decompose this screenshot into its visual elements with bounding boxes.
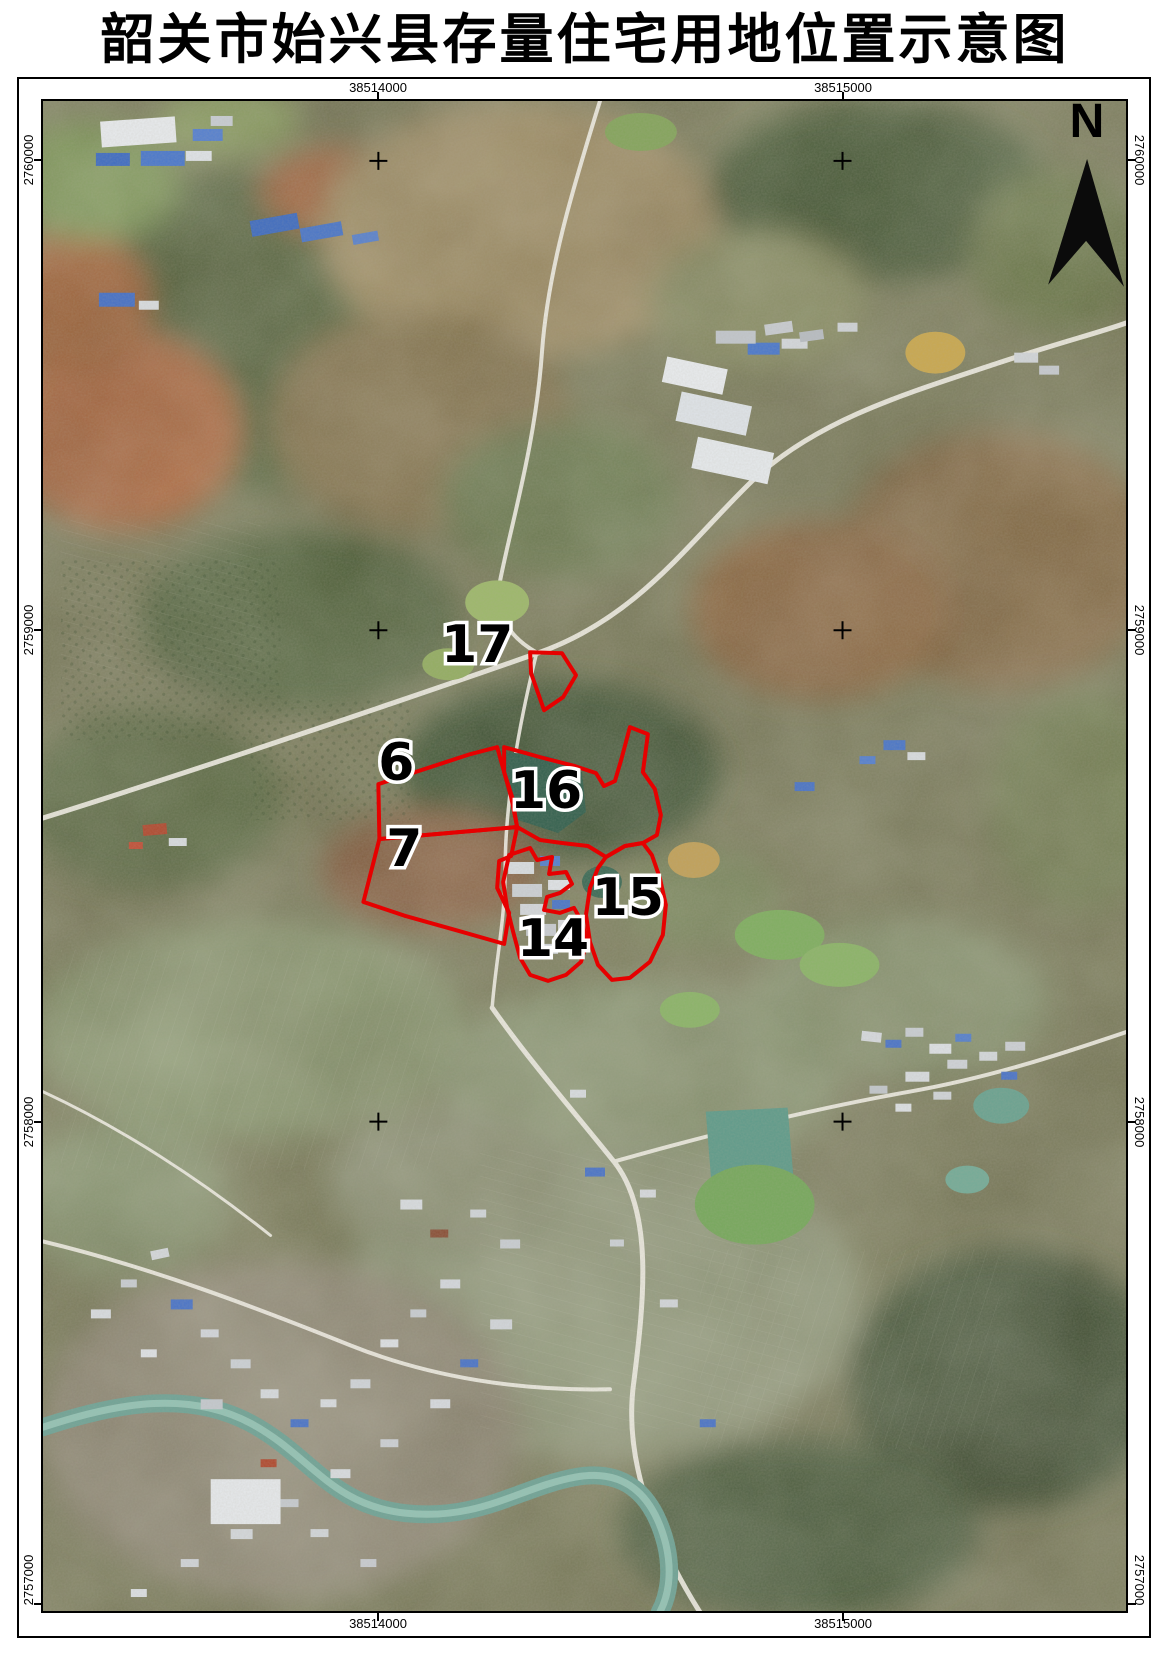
page-title: 韶关市始兴县存量住宅用地位置示意图 [0,6,1170,72]
grid-tick [842,92,844,100]
coord-right: 2757000 [1131,1535,1147,1625]
parcel-label-14: 14 [517,909,589,969]
grid-tick [1128,1603,1136,1605]
grid-tick [1128,159,1136,161]
grid-tick [377,92,379,100]
parcel-label-17: 17 [441,615,513,675]
parcel-label-6: 6 [378,733,414,793]
satellite-map: 1767161514 [43,101,1126,1611]
grid-tick [842,1613,844,1621]
parcel-label-16: 16 [510,761,582,821]
north-label: N [1062,94,1112,150]
grid-tick [34,1603,42,1605]
map-frame: 1767161514 [41,99,1128,1613]
grid-tick [34,159,42,161]
parcel-label-7: 7 [386,819,422,879]
coord-left: 2757000 [21,1535,37,1625]
grid-tick [1128,629,1136,631]
grid-tick [34,629,42,631]
satellite-grain [43,101,1126,1611]
grid-tick [34,1121,42,1123]
parcel-label-15: 15 [592,868,664,928]
page: 韶关市始兴县存量住宅用地位置示意图 [0,0,1170,1653]
grid-tick [377,1613,379,1621]
grid-tick [1128,1121,1136,1123]
